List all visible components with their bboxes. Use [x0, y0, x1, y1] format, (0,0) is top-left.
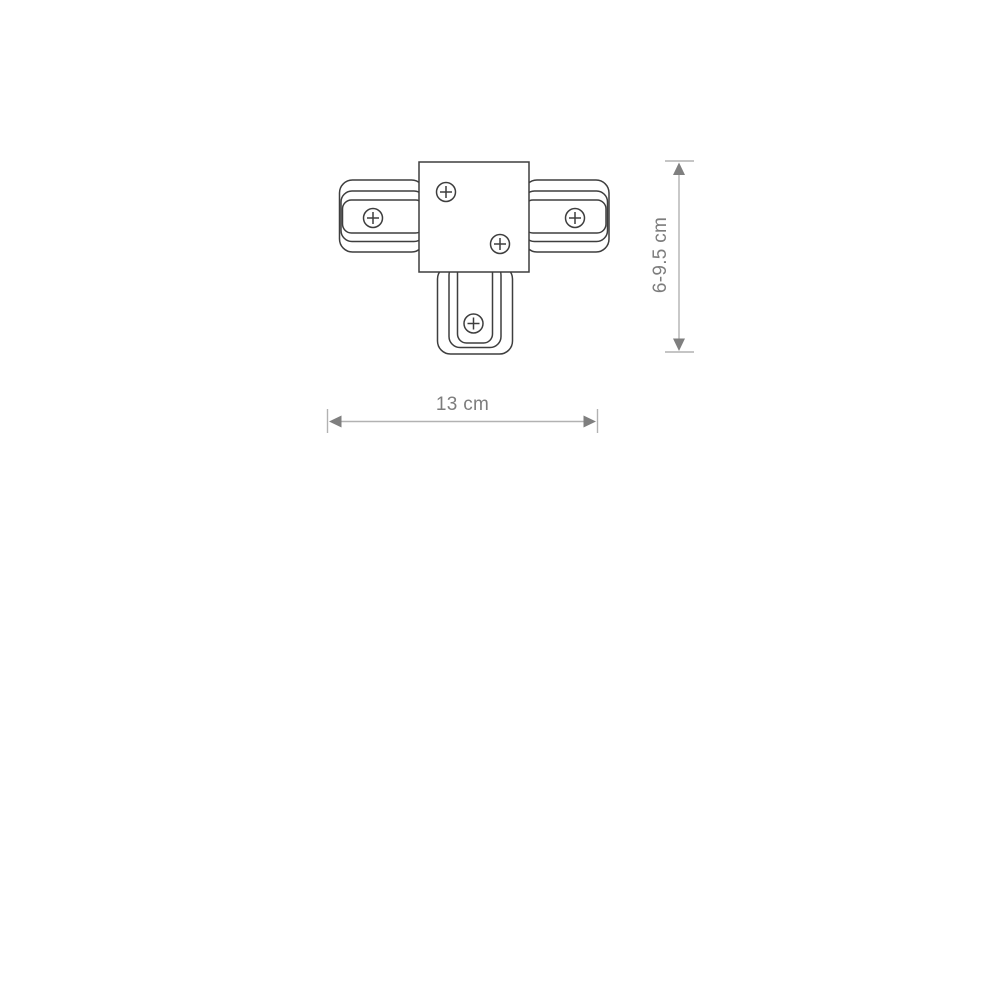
screw-icon — [464, 314, 483, 333]
arrow-left-icon — [329, 416, 342, 428]
width-dimension-label: 13 cm — [436, 394, 489, 415]
center-junction-box — [419, 162, 529, 272]
arrow-down-icon — [673, 339, 685, 352]
arrow-right-icon — [584, 416, 597, 428]
height-dimension-label: 6-9.5 cm — [650, 217, 671, 293]
screw-icon — [566, 209, 585, 228]
height-dimension: 6-9.5 cm — [650, 161, 694, 352]
bottom-arm — [438, 262, 513, 354]
bottom-arm-inner-profile — [458, 262, 493, 343]
left-arm-inner-profile — [343, 200, 425, 233]
page-canvas: 6-9.5 cm 13 cm — [0, 0, 1000, 1000]
arrow-up-icon — [673, 163, 685, 176]
t-connector-diagram: 6-9.5 cm 13 cm — [0, 0, 1000, 1000]
width-dimension: 13 cm — [328, 394, 598, 433]
connector-body — [340, 162, 610, 354]
screw-icon — [364, 209, 383, 228]
